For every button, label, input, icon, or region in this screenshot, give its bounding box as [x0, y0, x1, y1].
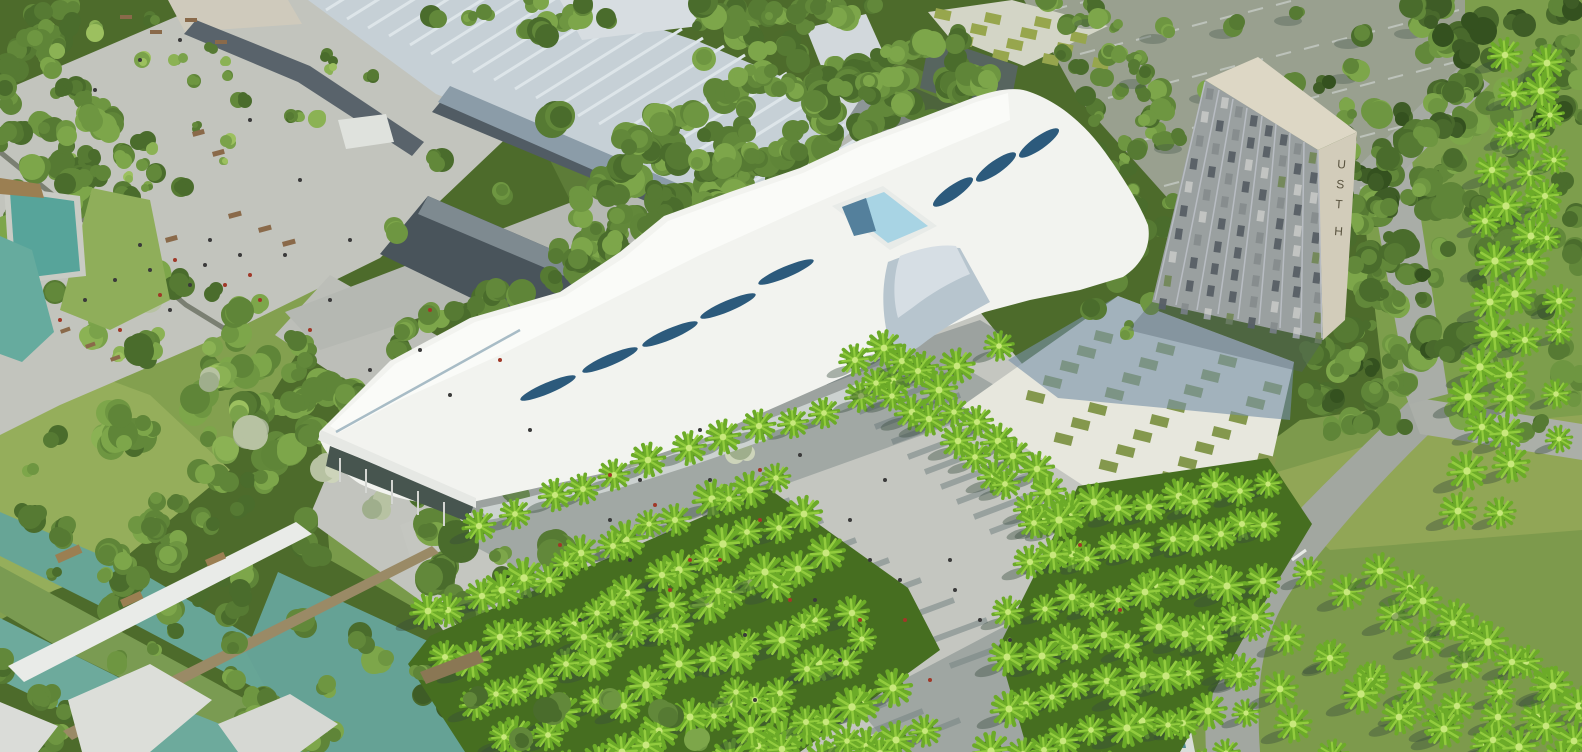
svg-text:H: H [1334, 224, 1344, 239]
svg-text:S: S [1336, 177, 1345, 192]
svg-text:U: U [1337, 157, 1347, 172]
